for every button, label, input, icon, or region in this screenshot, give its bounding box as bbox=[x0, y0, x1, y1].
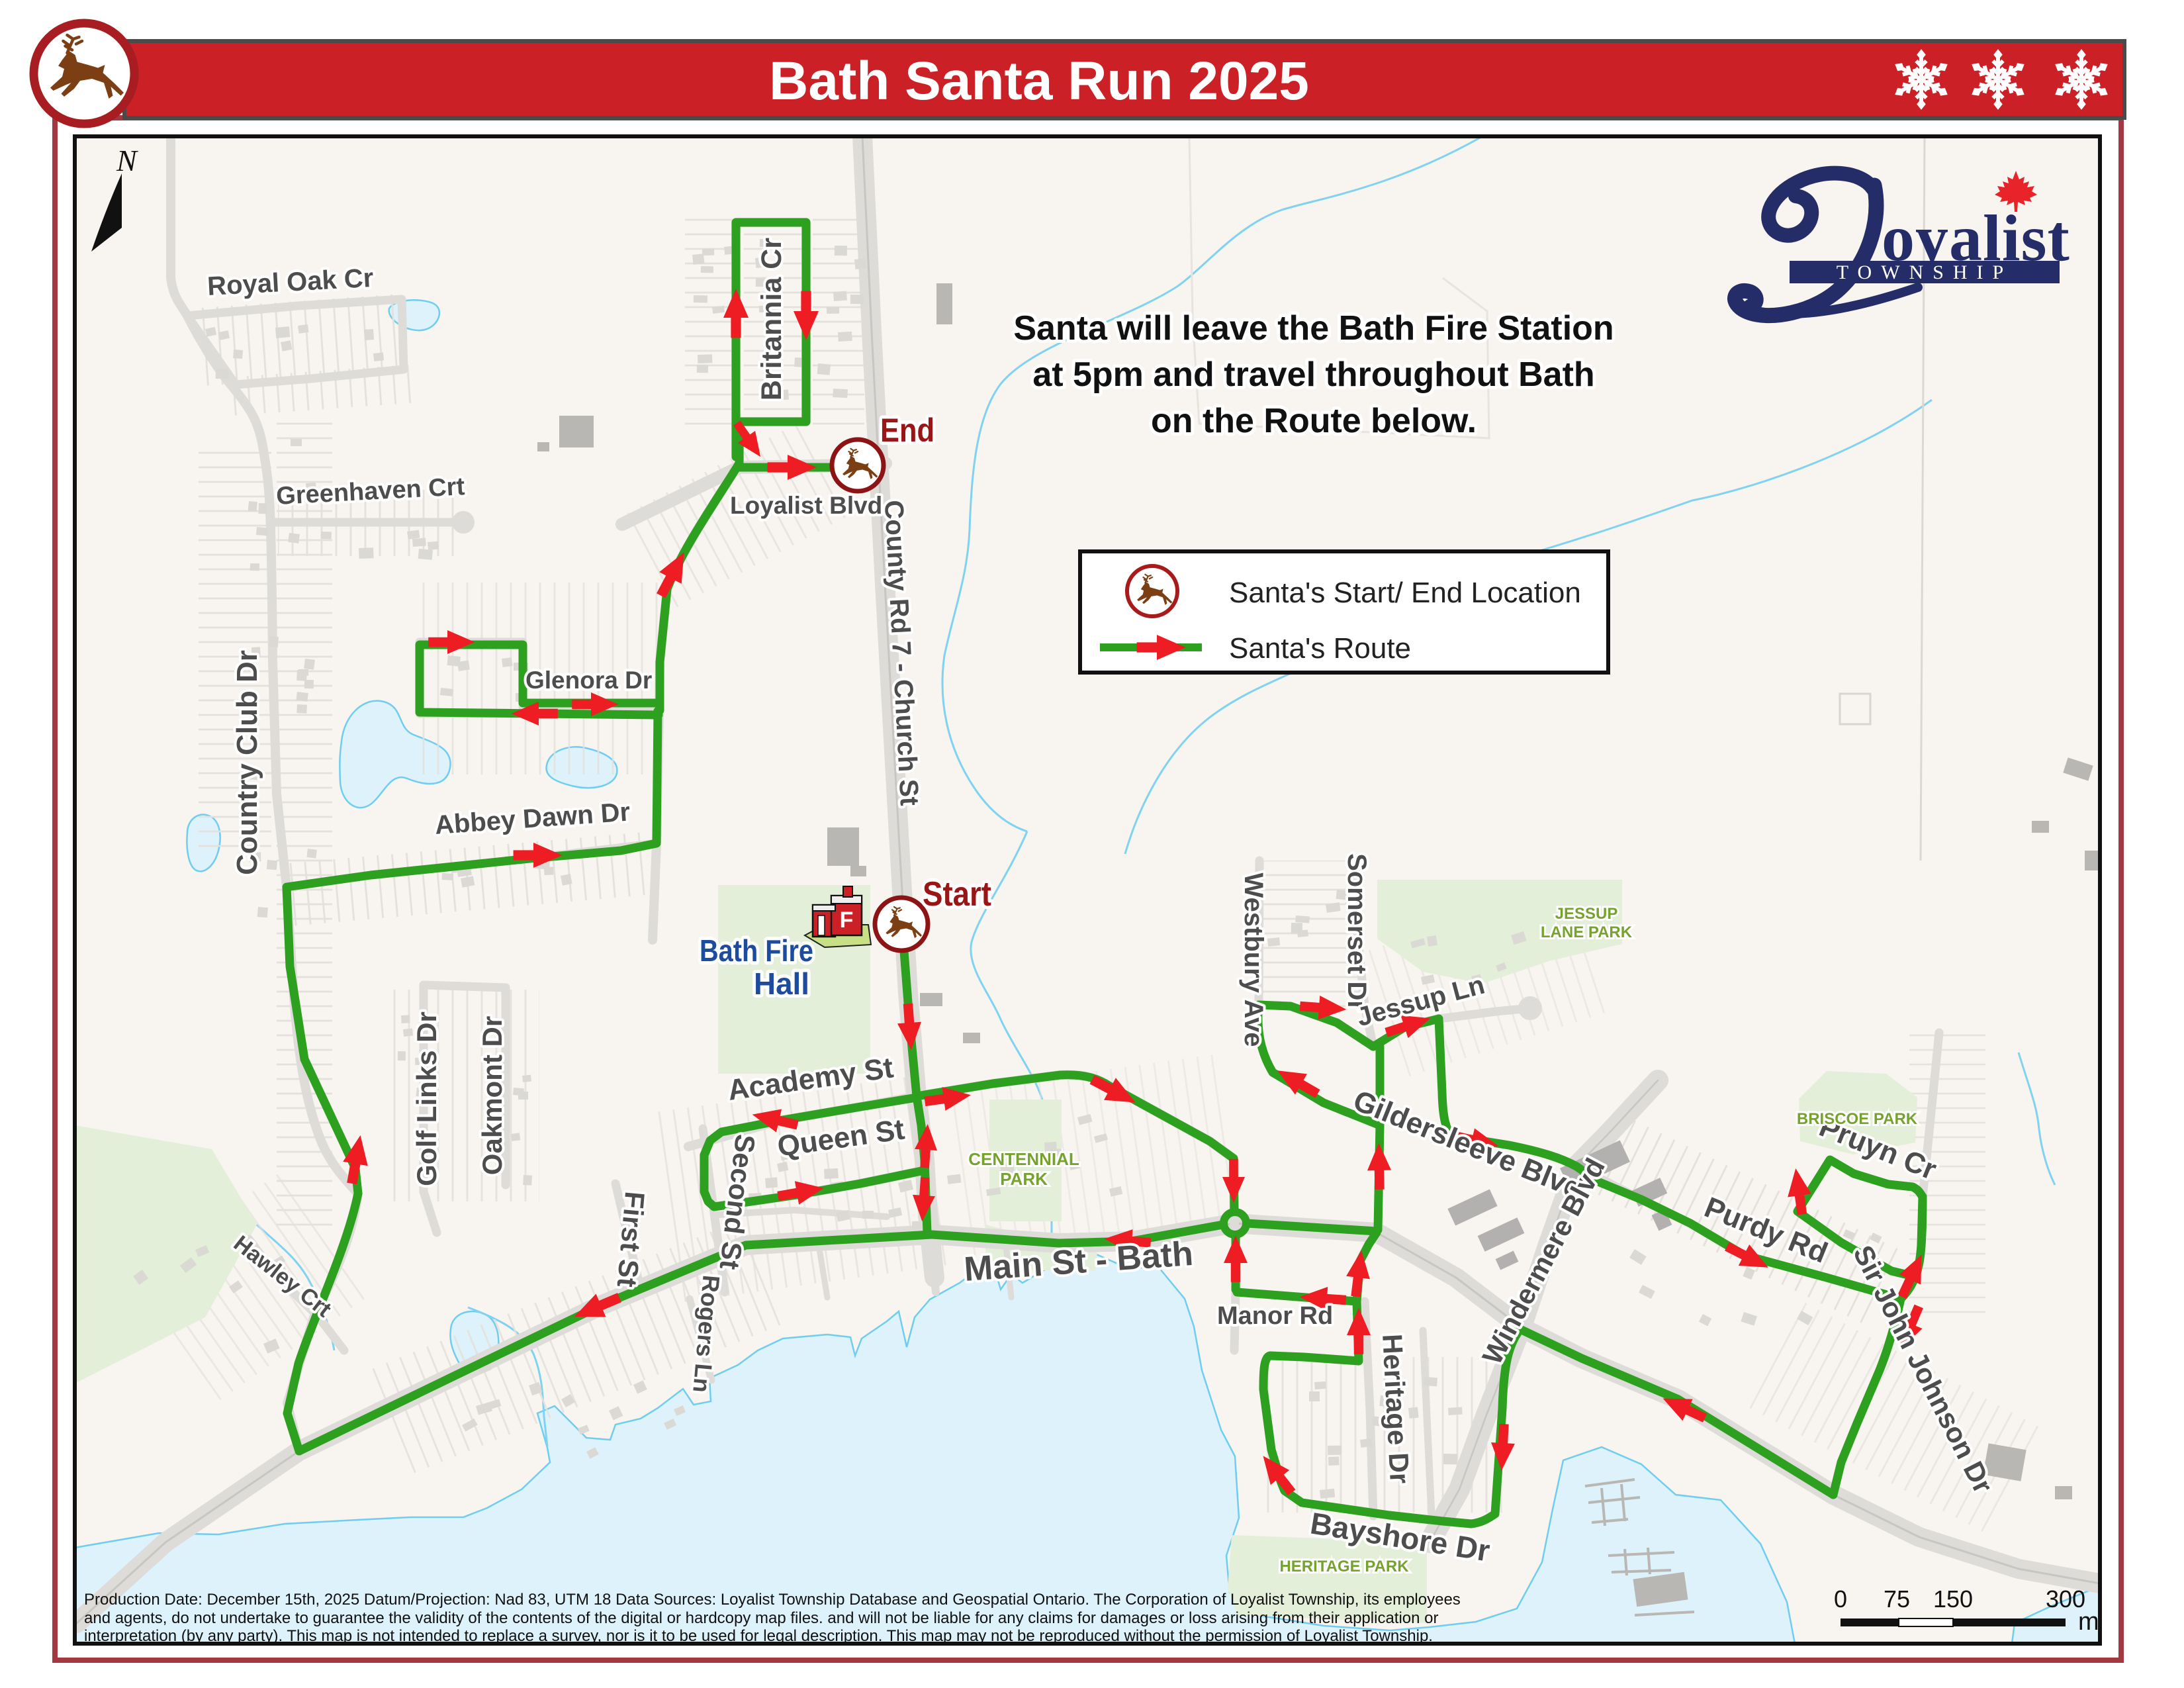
svg-text:at 5pm and travel throughout B: at 5pm and travel throughout Bath bbox=[1032, 355, 1594, 394]
svg-text:Bath Santa Run 2025: Bath Santa Run 2025 bbox=[769, 51, 1309, 111]
svg-text:Start: Start bbox=[923, 875, 991, 914]
svg-text:Santa's Start/ End Location: Santa's Start/ End Location bbox=[1229, 577, 1581, 609]
svg-text:Britannia Cr: Britannia Cr bbox=[756, 238, 788, 400]
svg-text:PARK: PARK bbox=[1000, 1169, 1048, 1189]
svg-text:TOWNSHIP: TOWNSHIP bbox=[1837, 261, 2013, 283]
svg-text:CENTENNIAL: CENTENNIAL bbox=[968, 1149, 1079, 1169]
svg-text:Somerset Dr: Somerset Dr bbox=[1342, 853, 1371, 1011]
svg-text:0: 0 bbox=[1834, 1585, 1847, 1613]
svg-text:JESSUP: JESSUP bbox=[1555, 905, 1618, 923]
svg-text:Manor Rd: Manor Rd bbox=[1217, 1302, 1333, 1330]
svg-text:on the Route below.: on the Route below. bbox=[1151, 402, 1477, 440]
svg-text:Loyalist Blvd: Loyalist Blvd bbox=[730, 492, 882, 519]
svg-text:150: 150 bbox=[1933, 1585, 1973, 1613]
svg-text:Hall: Hall bbox=[754, 966, 809, 1001]
svg-text:F: F bbox=[840, 908, 854, 933]
svg-text:Country Club Dr: Country Club Dr bbox=[231, 650, 263, 875]
svg-text:End: End bbox=[880, 412, 934, 449]
svg-text:75: 75 bbox=[1884, 1585, 1910, 1613]
svg-text:Production Date: December 15th: Production Date: December 15th, 2025 Dat… bbox=[84, 1591, 1461, 1609]
svg-text:N: N bbox=[116, 144, 138, 177]
svg-text:LANE PARK: LANE PARK bbox=[1541, 923, 1633, 941]
svg-text:HERITAGE PARK: HERITAGE PARK bbox=[1279, 1558, 1409, 1575]
svg-text:and agents, do not undertake t: and agents, do not undertake to guarante… bbox=[84, 1609, 1439, 1627]
svg-text:Bath Fire: Bath Fire bbox=[700, 933, 813, 968]
svg-text:Golf Links Dr: Golf Links Dr bbox=[411, 1011, 442, 1186]
svg-text:Santa's Route: Santa's Route bbox=[1229, 632, 1411, 665]
svg-text:Glenora Dr: Glenora Dr bbox=[525, 667, 652, 694]
svg-text:BRISCOE PARK: BRISCOE PARK bbox=[1797, 1110, 1918, 1128]
svg-text:m: m bbox=[2078, 1608, 2099, 1636]
svg-text:Westbury Ave: Westbury Ave bbox=[1239, 872, 1268, 1047]
svg-text:Santa will leave the Bath Fire: Santa will leave the Bath Fire Station bbox=[1013, 309, 1614, 348]
svg-text:Oakmont Dr: Oakmont Dr bbox=[477, 1016, 508, 1175]
